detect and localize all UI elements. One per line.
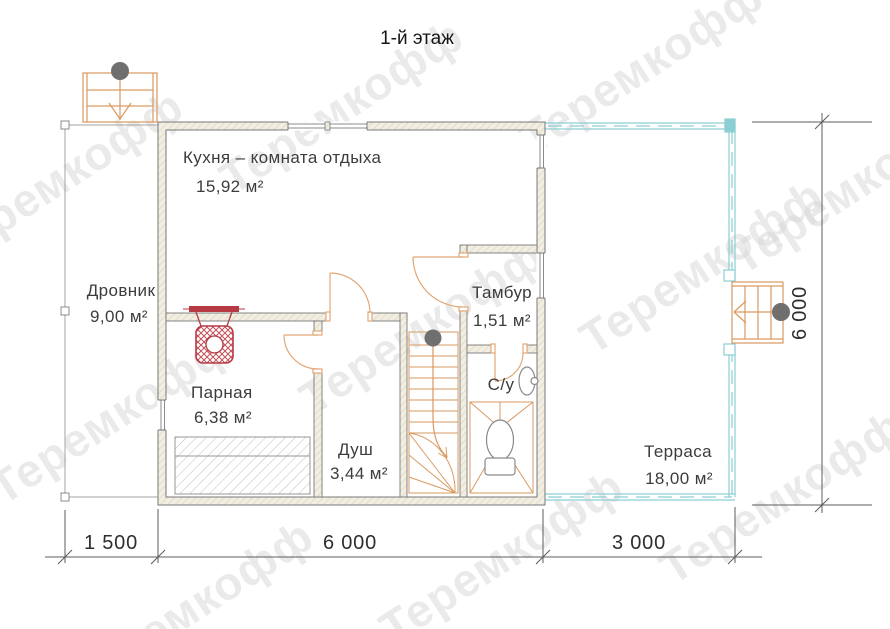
room-label-steam-area: 6,38 м² (194, 408, 252, 427)
dimension-value-left: 1 500 (84, 532, 138, 554)
room-label-vestibule-name: Тамбур (472, 283, 532, 302)
window-left-steamroom (158, 400, 168, 430)
room-label-kitchen-area: 15,92 м² (196, 177, 264, 196)
terrace-post (724, 344, 735, 355)
stair-post-marker (772, 303, 790, 321)
post-marker (61, 493, 69, 501)
room-label-shower-name: Душ (338, 440, 373, 459)
stair-post-marker (425, 330, 442, 347)
post-marker (61, 121, 69, 129)
window-top (288, 122, 367, 131)
floor-plan-drawing: Теремкофф Теремкофф Теремкофф Теремкофф … (0, 0, 890, 629)
floor-plan-page: Теремкофф Теремкофф Теремкофф Теремкофф … (0, 0, 890, 629)
watermark-text: Теремкофф (60, 509, 322, 629)
room-label-woodshed-name: Дровник (87, 281, 156, 300)
room-label-terrace-name: Терраса (644, 442, 712, 461)
watermark-text: Теремкофф (720, 89, 890, 284)
room-label-vestibule-area: 1,51 м² (473, 311, 531, 330)
room-label-shower-area: 3,44 м² (330, 464, 388, 483)
watermark-text: Теремкофф (370, 459, 632, 629)
terrace-corner-post (725, 119, 735, 132)
dimension-value-center: 6 000 (323, 532, 377, 554)
terrace-entry-opening (537, 253, 547, 298)
room-label-steam-name: Парная (191, 383, 253, 402)
sauna-bench (175, 437, 310, 494)
room-label-woodshed-area: 9,00 м² (90, 307, 148, 326)
room-label-terrace-area: 18,00 м² (645, 469, 713, 488)
watermark-text: Теремкофф (510, 0, 772, 164)
stair-post-marker (111, 62, 129, 80)
room-label-kitchen-name: Кухня – комната отдыха (183, 148, 382, 167)
terrace-stairs-icon (732, 282, 790, 343)
room-label-wc-name: С/у (488, 375, 515, 394)
window-right-kitchen (537, 135, 547, 168)
door-shower (326, 273, 372, 321)
toilet-icon (485, 420, 515, 475)
post-marker (61, 307, 69, 315)
dimension-value-right: 3 000 (612, 532, 666, 554)
terrace-post (724, 270, 735, 281)
plan-title: 1-й этаж (380, 28, 454, 49)
sink-icon (519, 367, 538, 395)
dimension-value-side: 6 000 (789, 286, 811, 340)
